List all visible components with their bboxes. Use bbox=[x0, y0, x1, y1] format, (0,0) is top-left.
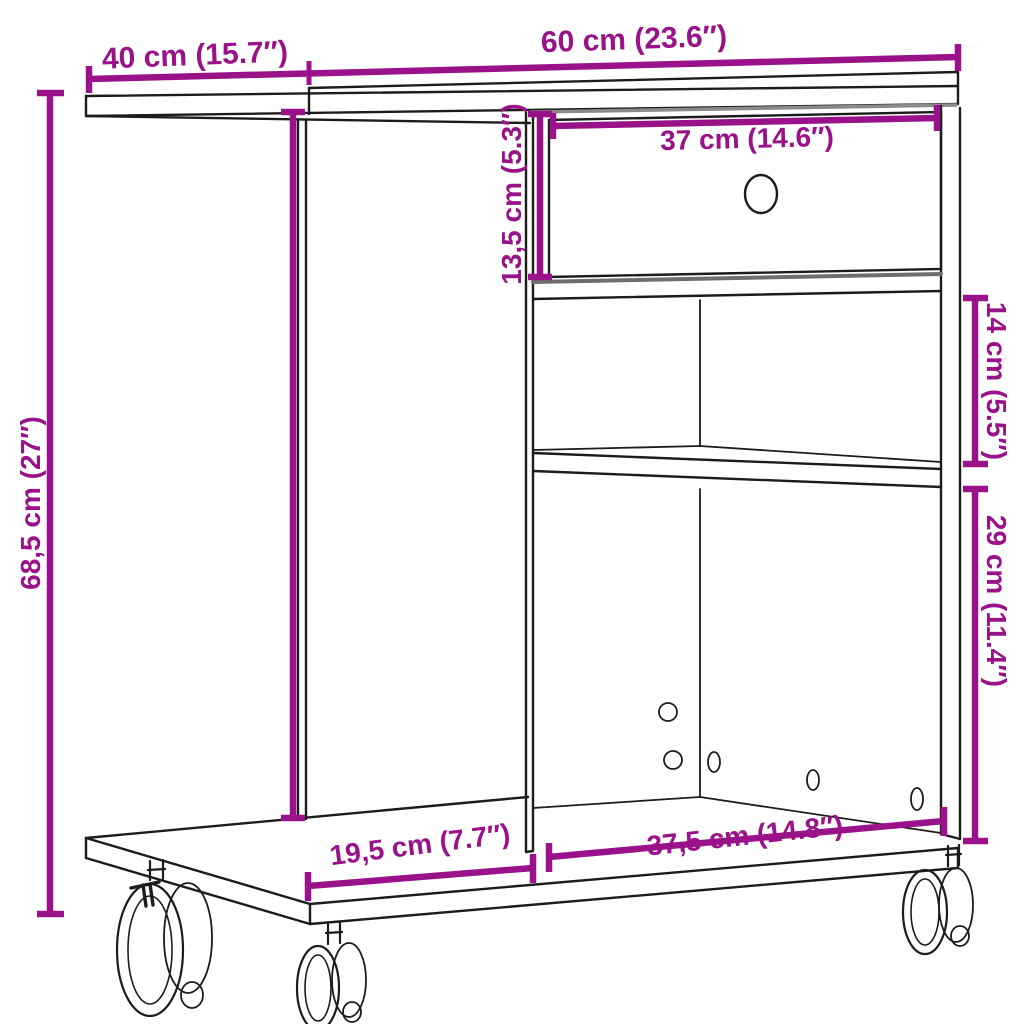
drawer-handle-hole bbox=[745, 175, 777, 213]
caster-front bbox=[297, 923, 366, 1024]
panel-hole bbox=[659, 703, 677, 721]
panel-hole bbox=[807, 770, 819, 790]
panel-hole bbox=[911, 788, 923, 810]
middle-shelf bbox=[533, 446, 941, 487]
dimension-label-lower-compartment-height: 29 cm (11.4″) bbox=[980, 515, 1012, 687]
caster-right bbox=[903, 845, 973, 954]
panel-hole bbox=[664, 751, 682, 769]
shelf-under-drawer bbox=[533, 274, 941, 299]
dimension-label-upper-compartment-height: 14 cm (5.5″) bbox=[980, 302, 1012, 460]
caster-left bbox=[117, 860, 212, 1016]
dimension-label-drawer-width: 37 cm (14.6″) bbox=[660, 121, 834, 157]
panel-hole bbox=[708, 752, 720, 772]
support-panel bbox=[298, 120, 306, 819]
dim-line-under-top-clearance bbox=[281, 112, 305, 818]
dimension-label-drawer-height: 13,5 cm (5.3″) bbox=[496, 103, 528, 285]
dimension-diagram: 40 cm (15.7″) 60 cm (23.6″) 37 cm (14.6″… bbox=[0, 0, 1024, 1024]
lower-compartment bbox=[533, 489, 941, 833]
dimension-label-total-height: 68,5 cm (27″) bbox=[15, 416, 47, 590]
dimension-label-top-width: 60 cm (23.6″) bbox=[540, 20, 727, 60]
